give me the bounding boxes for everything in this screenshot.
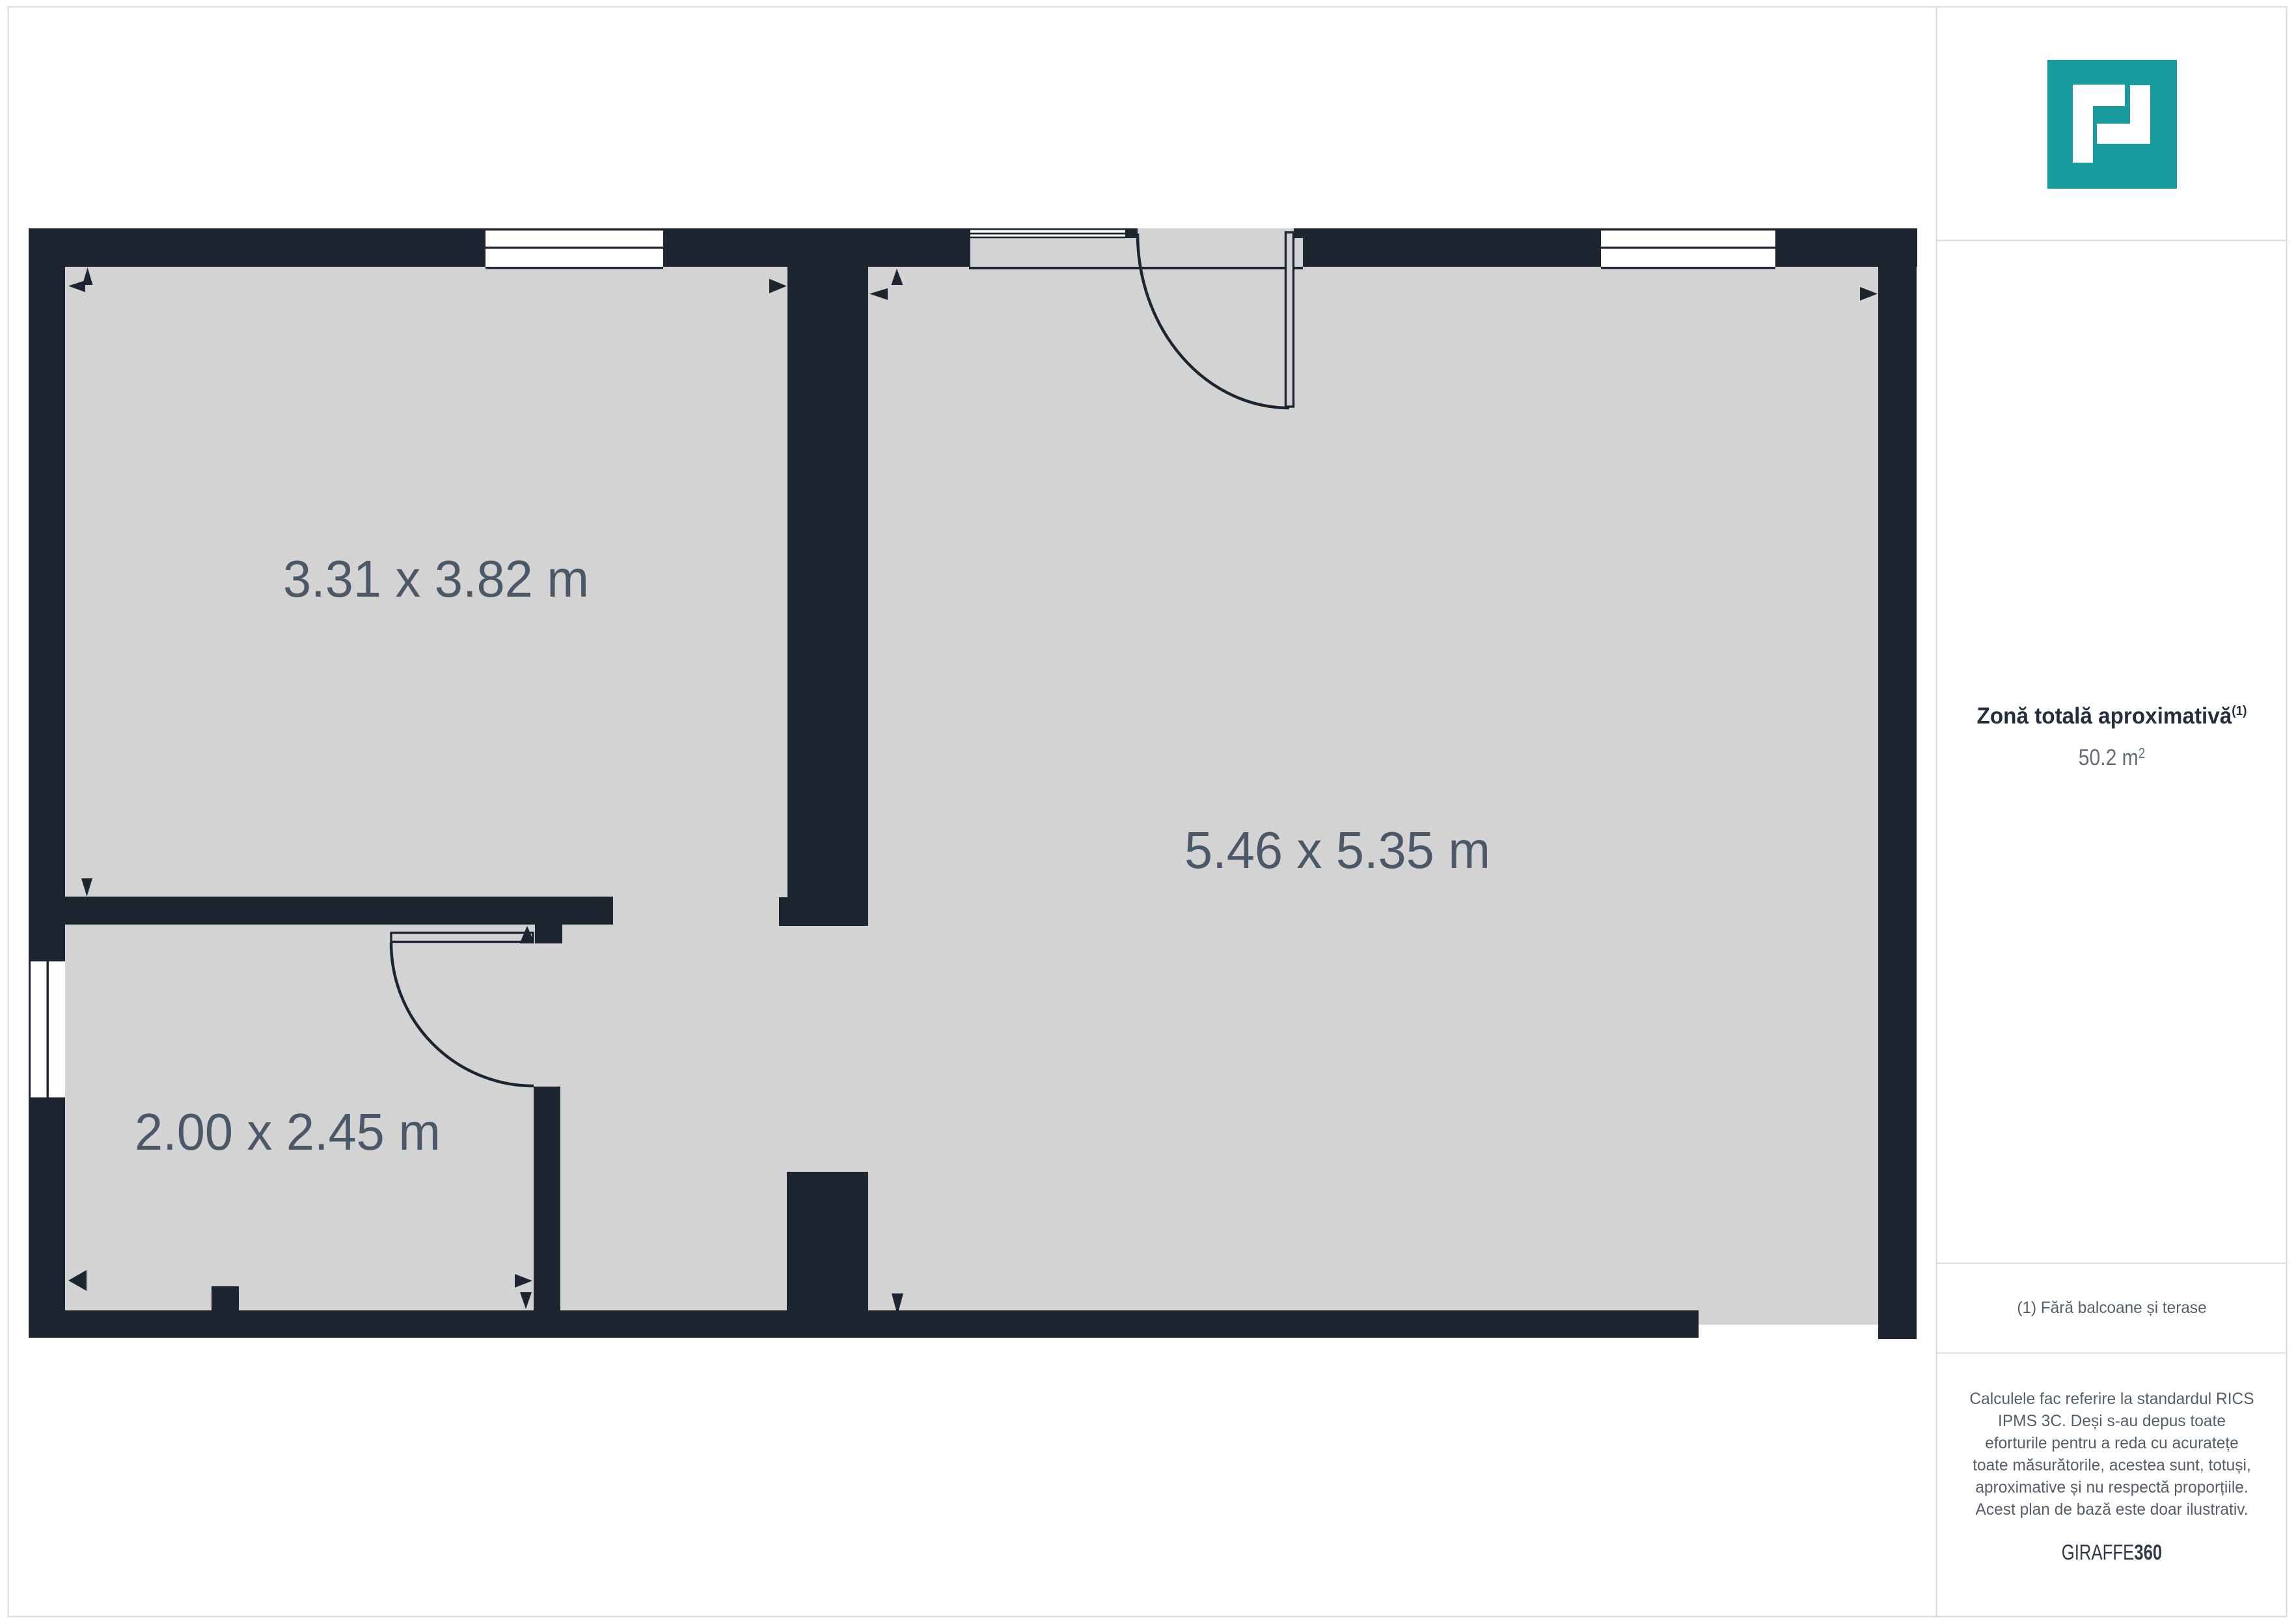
svg-text:3.31 x 3.82 m: 3.31 x 3.82 m (283, 550, 589, 608)
svg-text:2.00 x 2.45 m: 2.00 x 2.45 m (135, 1103, 441, 1161)
svg-text:5.46 x 5.35 m: 5.46 x 5.35 m (1184, 821, 1490, 879)
